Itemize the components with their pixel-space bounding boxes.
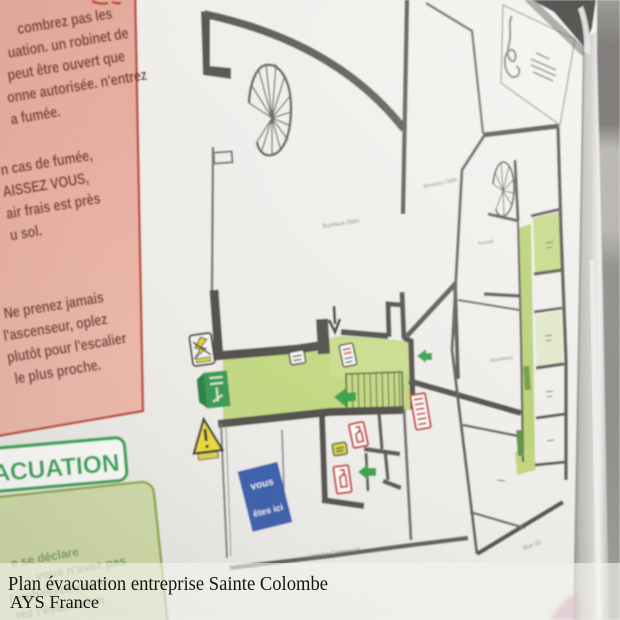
svg-text:AYS France: AYS France [10,592,99,612]
